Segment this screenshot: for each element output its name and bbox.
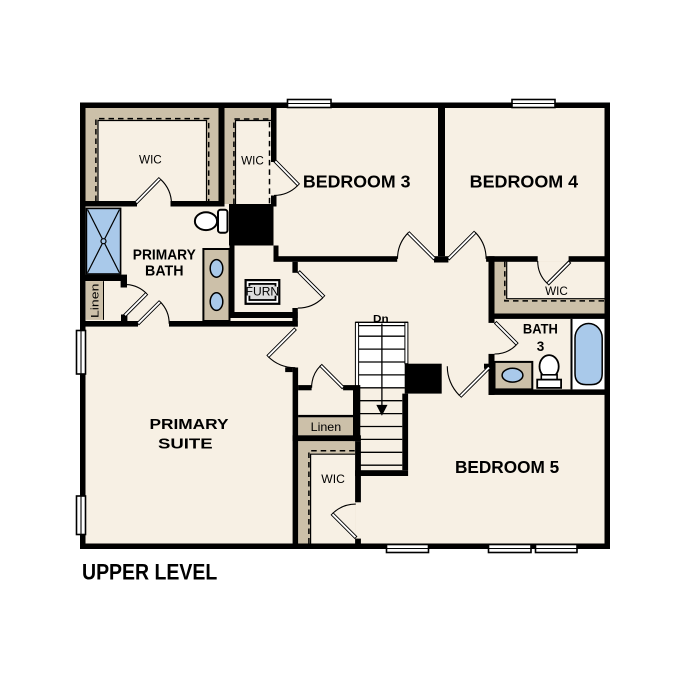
svg-text:UPPER LEVEL: UPPER LEVEL	[82, 560, 217, 585]
svg-text:PRIMARY: PRIMARY	[133, 248, 196, 264]
svg-text:3: 3	[537, 339, 545, 354]
svg-text:Dn: Dn	[373, 313, 389, 325]
svg-text:PRIMARY: PRIMARY	[150, 417, 229, 433]
svg-text:WIC: WIC	[321, 472, 345, 486]
svg-text:BATH: BATH	[523, 322, 558, 337]
svg-text:WIC: WIC	[139, 154, 162, 166]
svg-text:BEDROOM 5: BEDROOM 5	[455, 457, 560, 477]
svg-text:BEDROOM 4: BEDROOM 4	[470, 172, 579, 192]
svg-text:FURN: FURN	[246, 285, 279, 299]
svg-text:BEDROOM 3: BEDROOM 3	[303, 172, 411, 192]
svg-text:Linen: Linen	[90, 284, 102, 319]
svg-text:WIC: WIC	[545, 286, 568, 298]
svg-text:SUITE: SUITE	[158, 437, 213, 453]
svg-text:Linen: Linen	[311, 420, 342, 434]
svg-text:WIC: WIC	[241, 155, 264, 167]
svg-text:BATH: BATH	[145, 263, 184, 279]
